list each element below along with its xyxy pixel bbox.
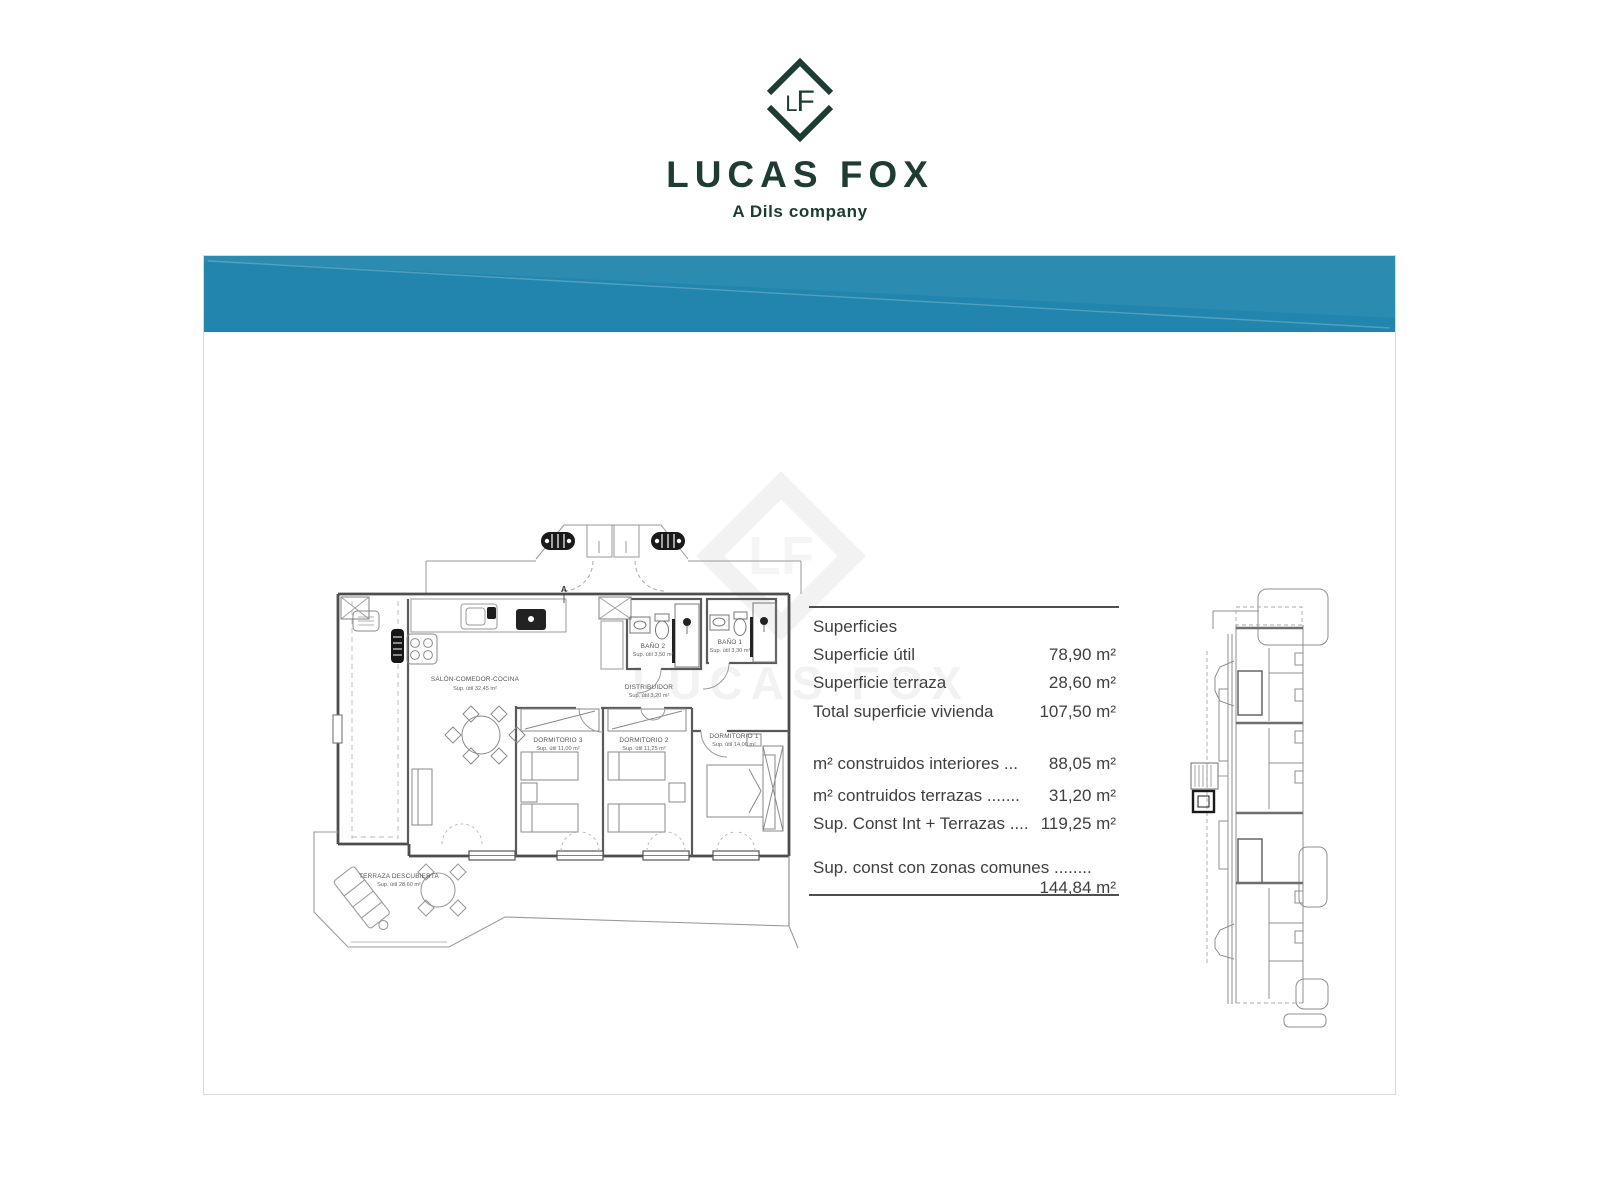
brand-tagline: A Dils company bbox=[0, 202, 1600, 222]
table-row: Total superficie vivienda 107,50 m² bbox=[813, 702, 1116, 722]
table-row: Sup. const con zonas comunes ........ 14… bbox=[813, 858, 1116, 898]
terrace-table-set bbox=[418, 864, 466, 916]
shaft-box bbox=[599, 597, 631, 619]
room-label-salon: SALÓN-COMEDOR-COCINA Sup. útil 32,45 m² bbox=[431, 674, 520, 692]
entry-door-arcs bbox=[563, 561, 665, 591]
apartment-floor-plan: A SALÓN-COMEDOR-COCINA Sup. útil 32,45 m… bbox=[306, 499, 806, 967]
svg-text:Sup. útil 3,30 m²: Sup. útil 3,30 m² bbox=[710, 648, 751, 654]
room-label-dormitorio-3: DORMITORIO 3 Sup. útil 11,00 m² bbox=[533, 737, 582, 752]
row-label: m² construidos interiores ... bbox=[813, 754, 1018, 774]
row-value: 28,60 m² bbox=[1049, 673, 1116, 693]
row-label: Superficie útil bbox=[813, 645, 915, 665]
wardrobes bbox=[521, 709, 783, 831]
row-label: Total superficie vivienda bbox=[813, 702, 993, 722]
superficies-table: Superficies Superficie útil 78,90 m² Sup… bbox=[809, 597, 1119, 909]
row-value: 119,25 m² bbox=[1041, 814, 1116, 834]
room-label-distribuidor: DISTRIBUIDOR Sup. útil 3,20 m² bbox=[625, 684, 673, 699]
svg-text:Sup. útil 11,25 m²: Sup. útil 11,25 m² bbox=[622, 746, 666, 752]
row-value: 107,50 m² bbox=[1039, 702, 1116, 722]
table-row: Sup. Const Int + Terrazas .... 119,25 m² bbox=[813, 814, 1116, 834]
table-rule-bottom bbox=[809, 894, 1119, 896]
row-label: Sup. Const Int + Terrazas .... bbox=[813, 814, 1029, 834]
svg-text:Sup. útil 14,00 m²: Sup. útil 14,00 m² bbox=[712, 742, 756, 748]
document-page: LF LUCAS FOX A Dils company LF LUCAS FOX bbox=[0, 0, 1600, 1200]
living-room-furniture bbox=[412, 706, 525, 825]
svg-text:DORMITORIO 2: DORMITORIO 2 bbox=[619, 737, 668, 744]
svg-text:TERRAZA DESCUBIERTA: TERRAZA DESCUBIERTA bbox=[359, 873, 439, 880]
svg-text:BAÑO 1: BAÑO 1 bbox=[718, 637, 743, 646]
table-row: m² contruidos terrazas ....... 31,20 m² bbox=[813, 786, 1116, 806]
table-title: Superficies bbox=[813, 617, 897, 637]
svg-text:Sup. útil 11,00 m²: Sup. útil 11,00 m² bbox=[536, 746, 580, 752]
gallery-strip bbox=[333, 597, 404, 839]
entry-radiator-icons bbox=[541, 532, 685, 550]
entry-structure bbox=[426, 525, 801, 594]
building-key-plan bbox=[1151, 566, 1336, 1051]
svg-text:DORMITORIO 3: DORMITORIO 3 bbox=[533, 737, 582, 744]
brand-name: LUCAS FOX bbox=[0, 156, 1600, 195]
svg-text:BAÑO 2: BAÑO 2 bbox=[641, 641, 666, 650]
keyplan-stair-core bbox=[1191, 763, 1228, 812]
keyplan-outline bbox=[1213, 589, 1328, 1027]
logo-monogram: LF bbox=[785, 85, 815, 118]
lucas-fox-diamond-logo-icon: LF bbox=[756, 56, 844, 144]
row-label: Superficie terraza bbox=[813, 673, 946, 693]
room-label-dormitorio-1: DORMITORIO 1 Sup. útil 14,00 m² bbox=[709, 733, 758, 748]
row-value: 78,90 m² bbox=[1049, 645, 1116, 665]
table-rule-top bbox=[809, 606, 1119, 608]
svg-text:A: A bbox=[561, 584, 567, 594]
brand-header: LF LUCAS FOX A Dils company bbox=[0, 56, 1600, 222]
row-label: m² contruidos terrazas ....... bbox=[813, 786, 1020, 806]
table-row: m² construidos interiores ... 88,05 m² bbox=[813, 754, 1116, 774]
bathroom-1-fixtures bbox=[703, 603, 776, 689]
svg-text:Sup. útil 3,50 m²: Sup. útil 3,50 m² bbox=[633, 652, 674, 658]
room-label-terraza: TERRAZA DESCUBIERTA Sup. útil 28,60 m² bbox=[359, 873, 439, 888]
row-value: 31,20 m² bbox=[1049, 786, 1116, 806]
kitchen-counter bbox=[407, 599, 623, 669]
terrace bbox=[314, 832, 798, 948]
teal-banner bbox=[204, 256, 1395, 332]
bedroom-furniture bbox=[521, 752, 775, 832]
row-label: Sup. const con zonas comunes ........ bbox=[813, 858, 1092, 878]
svg-text:SALÓN-COMEDOR-COCINA: SALÓN-COMEDOR-COCINA bbox=[431, 674, 520, 683]
plan-sheet: LF LUCAS FOX bbox=[203, 255, 1396, 1095]
room-label-bano-2: BAÑO 2 Sup. útil 3,50 m² bbox=[633, 641, 674, 658]
svg-text:Sup. útil 28,60 m²: Sup. útil 28,60 m² bbox=[377, 882, 421, 888]
svg-text:Sup. útil 32,45 m²: Sup. útil 32,45 m² bbox=[453, 686, 497, 692]
banner-diagonal-line bbox=[204, 256, 1395, 332]
svg-text:DISTRIBUIDOR: DISTRIBUIDOR bbox=[625, 684, 673, 691]
table-row: Superficie terraza 28,60 m² bbox=[813, 673, 1116, 693]
row-value: 88,05 m² bbox=[1049, 754, 1116, 774]
room-label-bano-1: BAÑO 1 Sup. útil 3,30 m² bbox=[710, 637, 751, 654]
svg-text:Sup. útil 3,20 m²: Sup. útil 3,20 m² bbox=[629, 693, 670, 699]
table-row: Superficie útil 78,90 m² bbox=[813, 645, 1116, 665]
room-label-dormitorio-2: DORMITORIO 2 Sup. útil 11,25 m² bbox=[619, 737, 668, 752]
svg-text:DORMITORIO 1: DORMITORIO 1 bbox=[709, 733, 758, 740]
